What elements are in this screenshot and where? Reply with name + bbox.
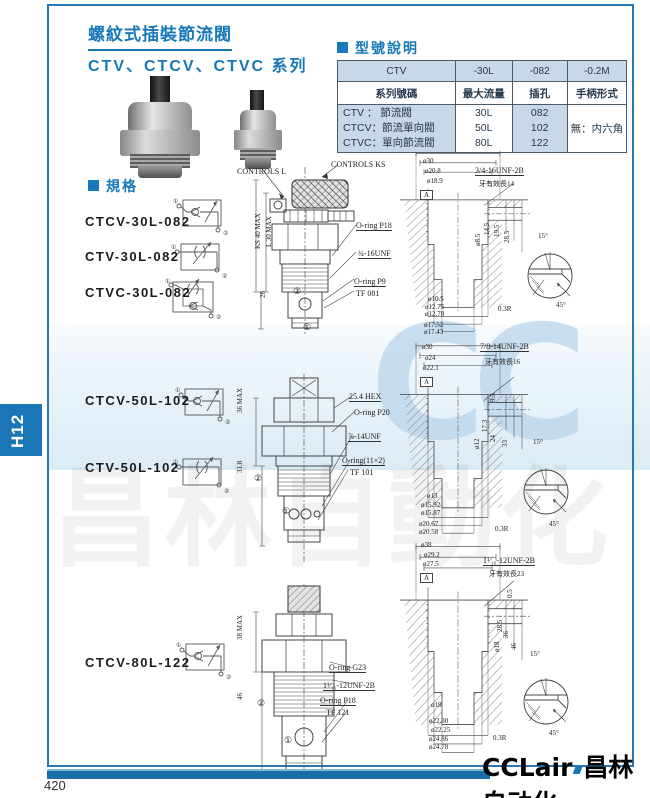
table-header-cell: 系列號碼 — [338, 82, 456, 105]
section-tab-label: H12 — [8, 414, 28, 448]
dim-label: KS 40 MAX — [254, 213, 262, 249]
dia-label: ø13 — [427, 492, 438, 500]
dia-label: ø17.43 — [424, 328, 443, 336]
table-header-cell: 插孔 — [512, 82, 567, 105]
series-line: CTV ： 節流閥 — [343, 106, 453, 121]
detail-label: 45° — [556, 301, 566, 309]
detail-label: 15° — [530, 650, 540, 658]
dia-label: ø30 — [422, 343, 433, 351]
square-bullet-icon — [337, 42, 348, 53]
dia-label: ø24.78 — [429, 743, 448, 751]
model-label: CTV-50L-102 — [85, 460, 180, 475]
dim-label: 36 MAX — [236, 388, 244, 413]
port-label: ② — [216, 314, 221, 320]
detail-circle-50l — [520, 466, 572, 518]
spec-heading: 規格 — [88, 176, 138, 196]
port-label: ① — [165, 278, 170, 285]
port-label: ① — [282, 506, 290, 517]
valve-drawing-80l — [226, 582, 406, 782]
dia-label: ø24.86 — [429, 735, 448, 743]
dim-label: 46 — [510, 643, 518, 650]
detail-label: 15° — [538, 232, 548, 240]
logo-mark-icon — [573, 767, 583, 774]
model-table-heading: 型號說明 — [337, 38, 419, 58]
product-photo-small — [228, 90, 290, 178]
detail-label: 0.3R — [495, 525, 508, 533]
datum-label: A — [420, 190, 433, 200]
callout: TF 081 — [356, 289, 379, 298]
valve-hex — [120, 130, 200, 156]
catalog-page: CC 昌林自動化 H12 螺紋式插裝節流閥 CTV、CTCV、CTVC 系列 型… — [0, 0, 650, 798]
dia-label: ø20.67 — [419, 520, 438, 528]
thread-note: 牙有效長14 — [479, 179, 514, 189]
detail-label: 15° — [533, 438, 543, 446]
detail-label: 0.3R — [498, 305, 511, 313]
thread-note: 牙有效長16 — [485, 357, 520, 367]
callout: ¾-16UNF — [358, 249, 391, 259]
thread-note: 牙有效長23 — [489, 569, 524, 579]
dim-label: 17.3 — [481, 420, 489, 432]
dia-label: ø38 — [421, 541, 432, 549]
table-header-cell: 最大流量 — [455, 82, 512, 105]
dim-label: 28.5 — [503, 231, 511, 243]
series-line: CTVC：單向節流閥 — [343, 136, 453, 151]
thread-label: 3/4-16UNF-2B — [475, 166, 524, 176]
port-label: ① — [284, 735, 292, 746]
model-label: CTCV-30L-082 — [85, 214, 190, 229]
dim-label: 33 — [501, 440, 509, 447]
callout: O-ring P20 — [354, 408, 390, 417]
datum-label: A — [420, 573, 433, 583]
logo-latin: CCLair — [482, 753, 572, 782]
dim-label: ø18 — [493, 642, 501, 653]
flow-cell: 30L 50L 80L — [455, 105, 512, 153]
thread-label: 7/8-14UNF-2B — [480, 342, 529, 352]
dim-label: 38 MAX — [236, 615, 244, 640]
page-title: 螺紋式插裝節流閥 — [88, 20, 232, 51]
callout: ⅞-14UNF — [348, 432, 381, 442]
series-cell: CTV ： 節流閥 CTCV：節流單向閥 CTVC：單向節流閥 — [338, 105, 456, 153]
cavity-drawing-30l — [398, 148, 548, 338]
dim-label: 46 — [236, 693, 244, 700]
detail-label: 45° — [549, 729, 559, 737]
dia-label: ø10.5 — [428, 295, 444, 303]
page-subtitle: CTV、CTCV、CTVC 系列 — [88, 52, 308, 76]
hydraulic-symbol-throttle: ① ② — [171, 238, 231, 280]
callout: O-ring(11×2) — [342, 456, 385, 466]
port-label: ② — [257, 698, 265, 709]
valve-nose — [138, 166, 182, 178]
datum-label: A — [420, 377, 433, 387]
dia-label: ø12.70 — [425, 310, 444, 318]
dia-label: ø22.1 — [423, 364, 439, 372]
square-bullet-icon — [88, 180, 99, 191]
model-table: CTV -30L -082 -0.2M 系列號碼 最大流量 插孔 手柄形式 CT… — [337, 60, 627, 153]
dia-label: ø24 — [425, 354, 436, 362]
flow-line: 80L — [458, 136, 510, 151]
model-label: CTCV-80L-122 — [85, 655, 190, 670]
dim-label: 0.5 — [506, 589, 514, 598]
dia-label: ø18.9 — [427, 177, 443, 185]
callout: O-ring G23 — [329, 663, 366, 673]
hole-cell: 082 102 122 — [512, 105, 567, 153]
callout: CONTROLS L — [237, 167, 286, 176]
callout: O-ring P18 — [320, 696, 356, 706]
model-label: CTVC-30L-082 — [85, 285, 191, 300]
dia-label: ø15.92 — [421, 501, 440, 509]
flow-line: 50L — [458, 121, 510, 136]
table-cell: -30L — [455, 61, 512, 82]
detail-label: 45° — [549, 520, 559, 528]
valve-knurl — [240, 110, 276, 132]
dim-label: 31.8 — [236, 461, 244, 473]
callout: TF 121 — [326, 708, 349, 717]
dim-label: 14.5 — [483, 223, 491, 235]
callout: 25.4 HEX — [349, 392, 381, 402]
hole-line: 122 — [515, 136, 565, 151]
footer-bar — [47, 769, 490, 779]
dim-label: 19.5 — [493, 225, 501, 237]
dia-label: ø30 — [423, 157, 434, 165]
hydraulic-symbol-throttle: ① ② — [173, 453, 233, 495]
hole-line: 082 — [515, 106, 565, 121]
dia-label: ø27.5 — [423, 560, 439, 568]
model-label: CTCV-50L-102 — [85, 393, 190, 408]
callout: 1¹⁄₁₆-12UNF-2B — [323, 681, 375, 691]
valve-knurl — [128, 102, 192, 132]
product-photo-large — [98, 76, 223, 178]
port-label: ② — [254, 473, 262, 484]
dia-label: ø22.25 — [431, 726, 450, 734]
flow-line: 30L — [458, 106, 510, 121]
spec-heading-text: 規格 — [106, 178, 138, 194]
valve-stem — [250, 90, 264, 112]
table-cell: -082 — [512, 61, 567, 82]
handle-cell: 無：内六角 — [567, 105, 626, 153]
dim-label: 36 — [502, 631, 510, 638]
table-header-cell: 手柄形式 — [567, 82, 626, 105]
callout: O-ring P9 — [354, 277, 386, 287]
dia-label: ø20.58 — [419, 528, 438, 536]
detail-circle-80l — [520, 676, 572, 728]
detail-label: 0.3R — [493, 734, 506, 742]
table-cell: -0.2M — [567, 61, 626, 82]
dim-label: ø12 — [473, 439, 481, 450]
dia-label: ø22.30 — [429, 717, 448, 725]
table-cell: CTV — [338, 61, 456, 82]
port-label: ② — [293, 286, 301, 297]
valve-hex — [234, 130, 282, 150]
dim-label: ø8.5 — [474, 234, 482, 246]
dia-label: ø20.8 — [425, 167, 441, 175]
port-label: ① — [303, 322, 311, 333]
dia-label: ø15.87 — [421, 509, 440, 517]
model-table-heading-text: 型號說明 — [355, 40, 419, 56]
dim-label: 28 — [259, 291, 267, 298]
model-label: CTV-30L-082 — [85, 249, 180, 264]
callout: TF 101 — [350, 468, 373, 477]
dim-label: 24 — [489, 435, 497, 442]
detail-circle-30l — [524, 250, 576, 302]
dia-label: ø29.2 — [424, 551, 440, 559]
hole-line: 102 — [515, 121, 565, 136]
series-line: CTCV：節流單向閥 — [343, 121, 453, 136]
port-label: ① — [173, 198, 178, 205]
thread-label: 1¹⁄₁₆-12UNF-2B — [483, 556, 535, 566]
company-logo: CCLair昌林自动化 — [482, 748, 650, 798]
dia-label: ø18 — [431, 701, 442, 709]
port-label: ① — [176, 642, 181, 649]
dim-label: L 30 MAX — [265, 216, 273, 247]
dim-label: 9.5 — [489, 393, 497, 402]
valve-stem — [150, 76, 170, 104]
callout: CONTROLS KS — [331, 160, 385, 169]
callout: O-ring P18 — [356, 221, 392, 231]
page-number: 420 — [44, 778, 66, 793]
section-tab: H12 — [0, 404, 42, 456]
